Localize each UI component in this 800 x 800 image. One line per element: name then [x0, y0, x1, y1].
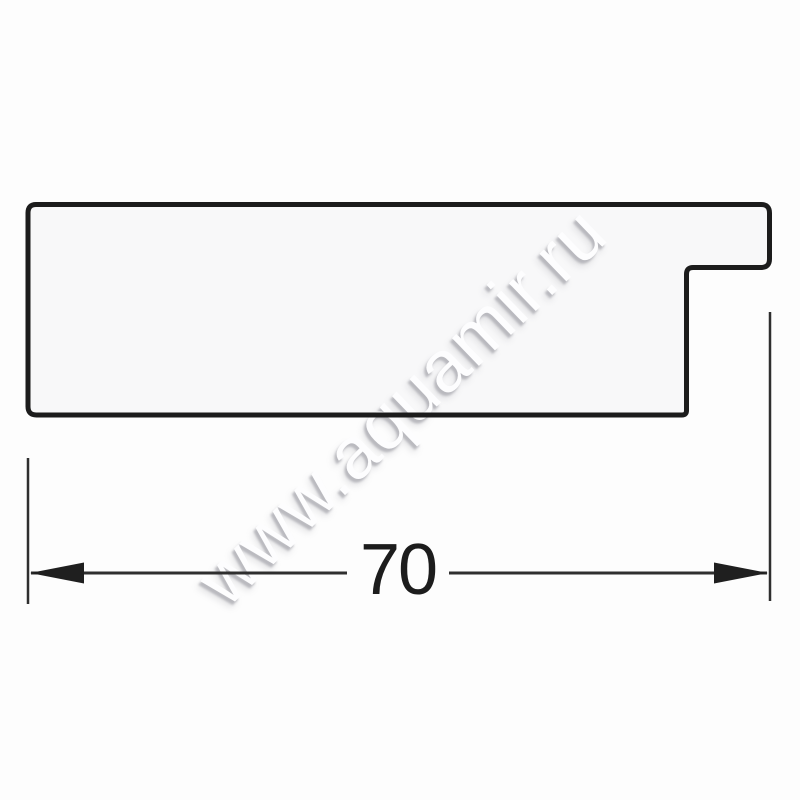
diagram-canvas: www.aquamir.ru 70: [0, 0, 800, 800]
profile-line-layer: [0, 0, 800, 800]
dimension-value: 70: [336, 534, 460, 606]
frame-profile-outline: [28, 205, 770, 416]
dimension-arrow-left-icon: [30, 563, 84, 584]
dimension-arrow-right-icon: [714, 563, 768, 584]
